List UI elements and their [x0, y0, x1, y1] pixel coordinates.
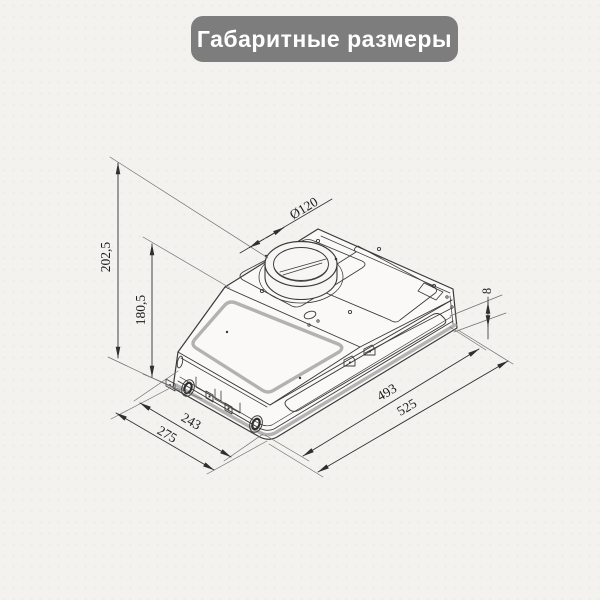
label-length-inner: 493 [374, 380, 399, 403]
label-height-body: 180,5 [133, 295, 148, 326]
hood-dimension-drawing: 202,5 180,5 8 Ø120 243 275 493 525 [0, 0, 600, 600]
label-height-total: 202,5 [98, 242, 113, 273]
label-duct-diameter: Ø120 [287, 194, 321, 222]
label-flange-height: 8 [480, 288, 494, 294]
duct-collar [265, 242, 338, 300]
label-depth-outer: 275 [155, 423, 180, 446]
label-depth-inner: 243 [179, 410, 204, 433]
